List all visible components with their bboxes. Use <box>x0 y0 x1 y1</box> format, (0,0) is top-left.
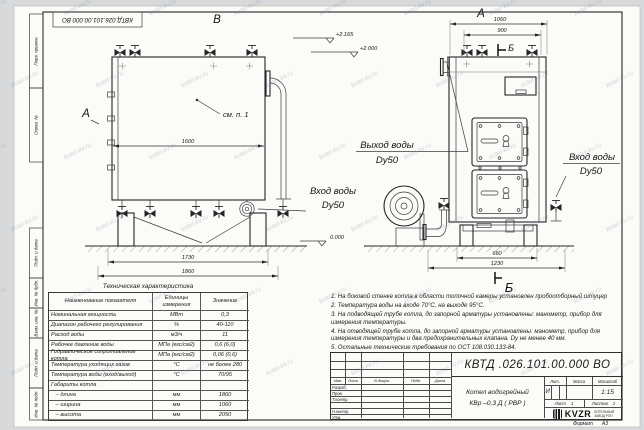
tech-cell: Гидравлическое сопротивление котла <box>49 350 153 360</box>
view-label-a: А <box>476 8 485 20</box>
dim-1860: 1860 <box>182 269 195 275</box>
product-name-line1: Котел водогрейный <box>466 388 529 399</box>
drawing-sheet-page: Перв. примен. Справ. № Подп. и дата Инв.… <box>0 0 644 430</box>
technical-notes: 1. На боковой стенке котла в области топ… <box>331 293 620 353</box>
dim-660: 660 <box>492 251 502 257</box>
margin-label: Перв. примен. <box>34 36 39 65</box>
side-inlet-dn: Dy50 <box>580 166 603 177</box>
tech-table-grid: Наименование показателя Единицы измерени… <box>48 292 248 421</box>
mass-label: Масса <box>566 377 592 385</box>
tech-characteristics-table: Техническая характеристика Наименование … <box>48 283 248 421</box>
tech-cell: 0,06 (0,6) <box>201 350 249 360</box>
sheet-value: 1 <box>571 401 573 406</box>
format-value: А3 <box>602 421 608 427</box>
side-inlet-label: Вход воды <box>569 152 615 163</box>
tech-cell: – высота <box>49 410 153 420</box>
col-list: Лист <box>345 377 361 384</box>
tech-cell: Температура воды (вход/выход) <box>49 370 153 380</box>
tech-cell: % <box>153 320 201 330</box>
tech-cell: Температура уходящих газов <box>49 360 153 370</box>
lit-value: И <box>544 385 551 399</box>
margin-label: Инв. № подл. <box>34 390 39 417</box>
sheets-value: 2 <box>613 401 615 406</box>
col-data: Дата <box>429 377 451 384</box>
note-item: 4. На отводящей трубе котла, до запорной… <box>331 328 620 343</box>
sheets-label: Листов <box>592 401 608 406</box>
margin-label: Справ. № <box>34 115 39 135</box>
kvzr-logo: KVZR КОТЕЛЬНЫЙ ЗАВОД РЭП <box>544 407 623 420</box>
note-item: 3. На подводящей трубе котла, до запорно… <box>331 311 620 326</box>
top-doc-number: КВТД.026.101.00.000 ВО <box>62 16 133 23</box>
margin-label: Инв. № дубл. <box>34 279 39 306</box>
title-block: КВТД .026.101.00.000 ВО Котел водогрейны… <box>330 352 622 420</box>
lit-label: Лит. <box>544 377 566 385</box>
side-outlet-dn: Dy50 <box>376 155 399 166</box>
row-utv: Утв. <box>332 415 360 421</box>
tech-cell: 70/95 <box>201 370 249 380</box>
col-ndoc: N докум. <box>361 377 403 384</box>
dim-1730: 1730 <box>182 255 195 261</box>
dim-1230: 1230 <box>491 261 504 267</box>
dim-900: 900 <box>497 28 507 34</box>
margin-label: Подп. и дата <box>34 349 39 377</box>
tech-cell: Номинальная мощность <box>49 310 153 320</box>
tech-table-title: Техническая характеристика <box>48 283 248 290</box>
callout-see-item: см. п. 1 <box>223 110 249 119</box>
tech-cell: – длина <box>49 390 153 400</box>
title-block-doc-number: КВТД .026.101.00.000 ВО <box>451 353 623 377</box>
dim-1060: 1060 <box>494 17 507 23</box>
tech-cell: 1060 <box>201 400 249 410</box>
kvzr-logo-text: KVZR <box>565 409 592 419</box>
side-outlet-label: Выход воды <box>360 140 413 151</box>
view-arrow-label-a: А <box>81 108 90 120</box>
format-label-row: ФорматА3 <box>520 421 608 427</box>
row-tkontr: Т.контр. <box>332 397 360 403</box>
tech-cell: 0,6 (6,0) <box>201 340 249 350</box>
product-name-line2: КВр –0,3 Д ( РВР ) <box>469 399 525 410</box>
tech-cell: МПа (кгс/см2) <box>153 350 201 360</box>
tech-cell: мм <box>153 400 201 410</box>
tech-col-header: Значение <box>201 293 249 310</box>
tech-cell: МПа (кгс/см2) <box>153 340 201 350</box>
elevation-mid: +2.000 <box>360 46 378 52</box>
tech-cell: °С <box>153 360 201 370</box>
front-inlet-dn: Dy50 <box>322 200 345 211</box>
dim-1600: 1600 <box>182 139 195 145</box>
tech-cell: 1860 <box>201 390 249 400</box>
tech-cell: не более 280 <box>201 360 249 370</box>
section-label-top: Б <box>508 43 514 53</box>
tech-cell: МВт <box>153 310 201 320</box>
tech-cell: 2050 <box>201 410 249 420</box>
tech-cell: Габариты котла <box>49 380 153 390</box>
format-label: Формат <box>573 421 593 427</box>
note-item: 5. Остальные технические требования по О… <box>331 344 620 352</box>
tech-col-header: Единицы измерения <box>153 293 201 310</box>
col-podp: Подп. <box>403 377 429 384</box>
sheets-cell: Листов 2 <box>584 399 623 407</box>
sheet-cell: Лист 1 <box>544 399 584 407</box>
elevation-zero: 0.000 <box>330 235 345 241</box>
tech-cell: мм <box>153 410 201 420</box>
tech-cell: – ширина <box>49 400 153 410</box>
kvzr-caption-line2: ЗАВОД РЭП <box>594 414 614 418</box>
note-item: 1. На боковой стенке котла в области топ… <box>331 293 620 301</box>
kvzr-logo-caption: КОТЕЛЬНЫЙ ЗАВОД РЭП <box>594 410 614 418</box>
col-izm: Изм. <box>331 377 345 384</box>
tech-cell: м3/ч <box>153 330 201 340</box>
tech-cell: 40-110 <box>201 320 249 330</box>
tech-cell: мм <box>153 390 201 400</box>
margin-label: Взам. инв. № <box>34 309 39 336</box>
note-item: 2. Температура воды на входе 70°С, на вы… <box>331 302 620 310</box>
tech-cell <box>201 380 249 390</box>
elevation-top: +2.165 <box>336 32 354 38</box>
margin-label: Подп. и дата <box>34 239 39 267</box>
view-label-v: В <box>213 14 221 26</box>
scale-label: Масштаб <box>592 377 623 385</box>
product-name: Котел водогрейный КВр –0,3 Д ( РВР ) <box>451 377 544 421</box>
tech-cell: 11 <box>201 330 249 340</box>
tech-col-header: Наименование показателя <box>49 293 153 310</box>
front-inlet-label: Вход воды <box>310 186 356 197</box>
tech-cell: Расход воды <box>49 330 153 340</box>
scale-value: 1:15 <box>592 385 623 399</box>
tech-cell: Диапазон рабочего регулирования <box>49 320 153 330</box>
tech-cell: 0,3 <box>201 310 249 320</box>
kvzr-logo-gear-icon <box>553 409 562 419</box>
tech-cell <box>153 380 201 390</box>
sheet-label: Лист <box>555 401 566 406</box>
tech-cell: °С <box>153 370 201 380</box>
